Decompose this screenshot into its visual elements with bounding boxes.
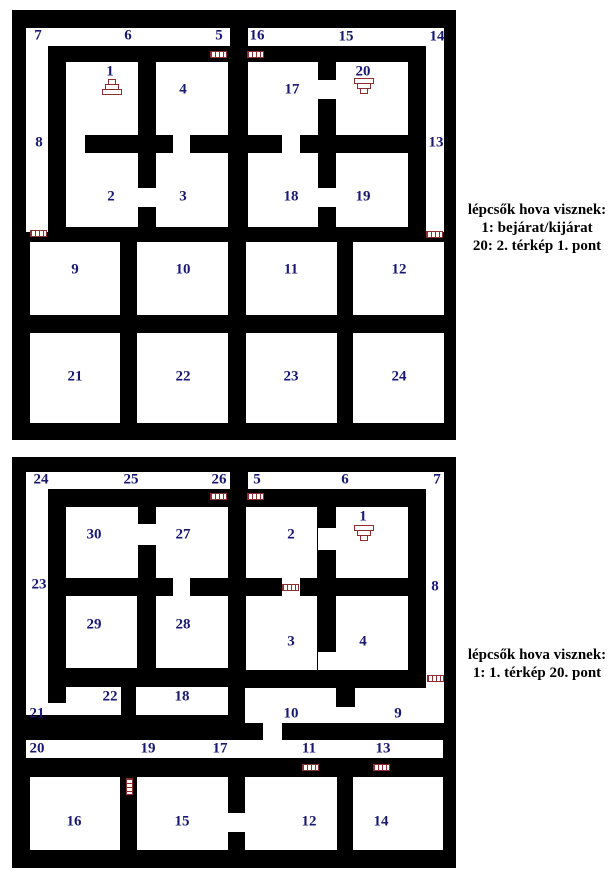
dungeon-maps-page: 765161514813141720231819910111221222324l… (0, 0, 608, 880)
room-label: 12 (302, 815, 317, 830)
floor-area (66, 596, 137, 668)
floor-area (156, 62, 228, 135)
floor-area (66, 62, 138, 135)
door-icon (30, 230, 47, 237)
floor-area (426, 472, 444, 723)
stairs-step (360, 88, 368, 94)
stairs-down-icon (354, 526, 374, 541)
floor-area (248, 62, 318, 135)
room-label: 8 (35, 136, 43, 151)
door-icon (427, 675, 444, 682)
floor-area (336, 153, 408, 227)
legend-line: lépcsők hova visznek: (462, 201, 608, 219)
room-label: 20 (30, 742, 45, 757)
room-label: 17 (213, 742, 228, 757)
floor-area (353, 242, 444, 315)
room-label: 9 (71, 263, 79, 278)
stairs-legend: lépcsők hova visznek:1: 1. térkép 20. po… (462, 646, 608, 682)
room-label: 22 (176, 370, 191, 385)
floor-area (318, 80, 336, 99)
room-label: 16 (250, 29, 265, 44)
door-icon (247, 51, 264, 58)
floor-area (173, 135, 190, 153)
room-label: 10 (176, 263, 191, 278)
room-label: 3 (287, 635, 295, 650)
floor-area (282, 135, 300, 153)
room-label: 7 (34, 29, 42, 44)
room-label: 9 (394, 707, 402, 722)
room-label: 8 (431, 580, 439, 595)
floor-area (336, 62, 408, 135)
room-label: 5 (215, 29, 223, 44)
floor-area (156, 507, 228, 578)
room-label: 14 (430, 30, 445, 45)
room-label: 21 (30, 707, 45, 722)
room-label: 2 (287, 528, 295, 543)
floor-area (66, 153, 138, 227)
room-label: 6 (124, 29, 132, 44)
legend-line: lépcsők hova visznek: (462, 646, 608, 664)
stairs-down-icon (354, 79, 374, 94)
floor-area (138, 524, 156, 545)
room-label: 4 (359, 635, 367, 650)
room-label: 25 (124, 473, 139, 488)
legend-line: 1: 1. térkép 20. pont (462, 664, 608, 682)
room-label: 11 (302, 742, 316, 757)
room-label: 1 (106, 65, 114, 80)
floor-area (228, 813, 245, 832)
floor-area (426, 28, 444, 232)
floor-area (156, 596, 228, 668)
room-label: 20 (356, 65, 371, 80)
room-label: 14 (374, 815, 389, 830)
floor-area (336, 596, 408, 670)
room-label: 15 (175, 815, 190, 830)
room-label: 6 (341, 473, 349, 488)
room-label: 28 (176, 618, 191, 633)
floor-area (353, 777, 443, 850)
floor-area (318, 652, 336, 670)
floor-area (246, 507, 317, 578)
door-icon (302, 764, 319, 771)
door-icon (426, 231, 443, 238)
room-label: 5 (253, 473, 261, 488)
floor-area (245, 707, 443, 723)
room-label: 11 (284, 263, 298, 278)
floor-area (26, 28, 48, 232)
room-label: 29 (87, 618, 102, 633)
stairs-step (360, 535, 368, 541)
room-label: 2 (107, 190, 115, 205)
room-label: 23 (32, 578, 47, 593)
room-label: 12 (392, 263, 407, 278)
room-label: 18 (284, 190, 299, 205)
room-label: 17 (285, 83, 300, 98)
room-label: 10 (284, 707, 299, 722)
floor-area (318, 528, 336, 550)
floor-area (156, 153, 228, 227)
room-label: 22 (103, 690, 118, 705)
stairs-step (102, 89, 122, 95)
room-label: 1 (359, 510, 367, 525)
floor-area (26, 472, 48, 715)
room-label: 16 (67, 815, 82, 830)
room-label: 30 (87, 528, 102, 543)
floor-area (245, 777, 337, 850)
door-icon (210, 493, 227, 500)
door-icon (210, 51, 227, 58)
room-label: 24 (34, 473, 49, 488)
room-label: 3 (179, 190, 187, 205)
floor-area (173, 578, 190, 596)
room-label: 15 (339, 30, 354, 45)
room-label: 13 (429, 136, 444, 151)
room-label: 4 (179, 83, 187, 98)
door-icon (247, 493, 264, 500)
door-icon (126, 778, 133, 795)
door-icon (373, 764, 390, 771)
room-label: 24 (392, 370, 407, 385)
door-icon (282, 584, 299, 591)
floor-area (138, 188, 156, 207)
floor-area (246, 596, 317, 670)
floor-area (66, 507, 138, 578)
stairs-up-icon (102, 80, 122, 95)
floor-area (246, 242, 337, 315)
room-label: 26 (212, 473, 227, 488)
room-label: 18 (175, 690, 190, 705)
floor-area (137, 242, 228, 315)
room-label: 19 (141, 742, 156, 757)
floor-area (263, 723, 282, 740)
floor-area (245, 688, 336, 707)
floor-area (336, 507, 408, 578)
floor-area (30, 242, 120, 315)
floor-area (48, 703, 66, 715)
room-label: 7 (433, 473, 441, 488)
floor-area (355, 688, 443, 707)
room-label: 23 (284, 370, 299, 385)
legend-line: 20: 2. térkép 1. pont (462, 237, 608, 255)
room-label: 21 (68, 370, 83, 385)
room-label: 19 (356, 190, 371, 205)
room-label: 27 (176, 528, 191, 543)
legend-line: 1: bejárat/kijárat (462, 219, 608, 237)
room-label: 13 (376, 742, 391, 757)
stairs-legend: lépcsők hova visznek:1: bejárat/kijárat2… (462, 201, 608, 255)
floor-area (66, 135, 85, 153)
floor-area (318, 188, 336, 207)
